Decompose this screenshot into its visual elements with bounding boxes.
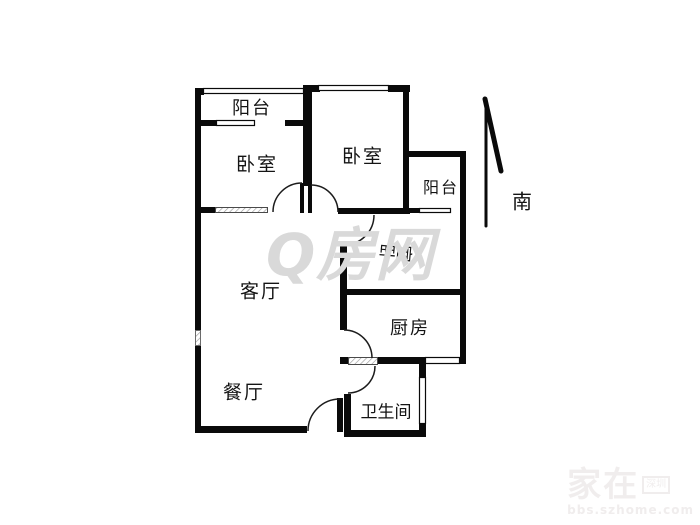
compass-south-label: 南	[512, 186, 532, 215]
corner-watermark-badge: 深圳	[642, 476, 670, 494]
room-label-bedroom-left: 卧室	[236, 150, 278, 177]
room-label-bathroom: 卫生间	[361, 398, 412, 423]
room-label-bedroom-middle: 卧室	[342, 142, 384, 169]
floor-plan-image: 阳台 卧室 卧室 阳台 卧室 客厅 厨房 餐厅 卫生间 南 Q房网 家在 深圳 …	[0, 0, 700, 525]
corner-watermark-url: bbs.szhome.com	[567, 503, 694, 517]
room-label-dining-room: 餐厅	[223, 378, 265, 405]
room-label-balcony-top: 阳台	[232, 94, 272, 120]
center-watermark: Q房网	[266, 226, 434, 284]
room-label-kitchen: 厨房	[390, 314, 430, 340]
corner-watermark-title: 家在	[567, 468, 639, 502]
room-label-balcony-right: 阳台	[423, 174, 459, 198]
compass-arrow-icon	[485, 99, 501, 226]
corner-watermark: 家在 深圳 bbs.szhome.com	[567, 468, 694, 517]
